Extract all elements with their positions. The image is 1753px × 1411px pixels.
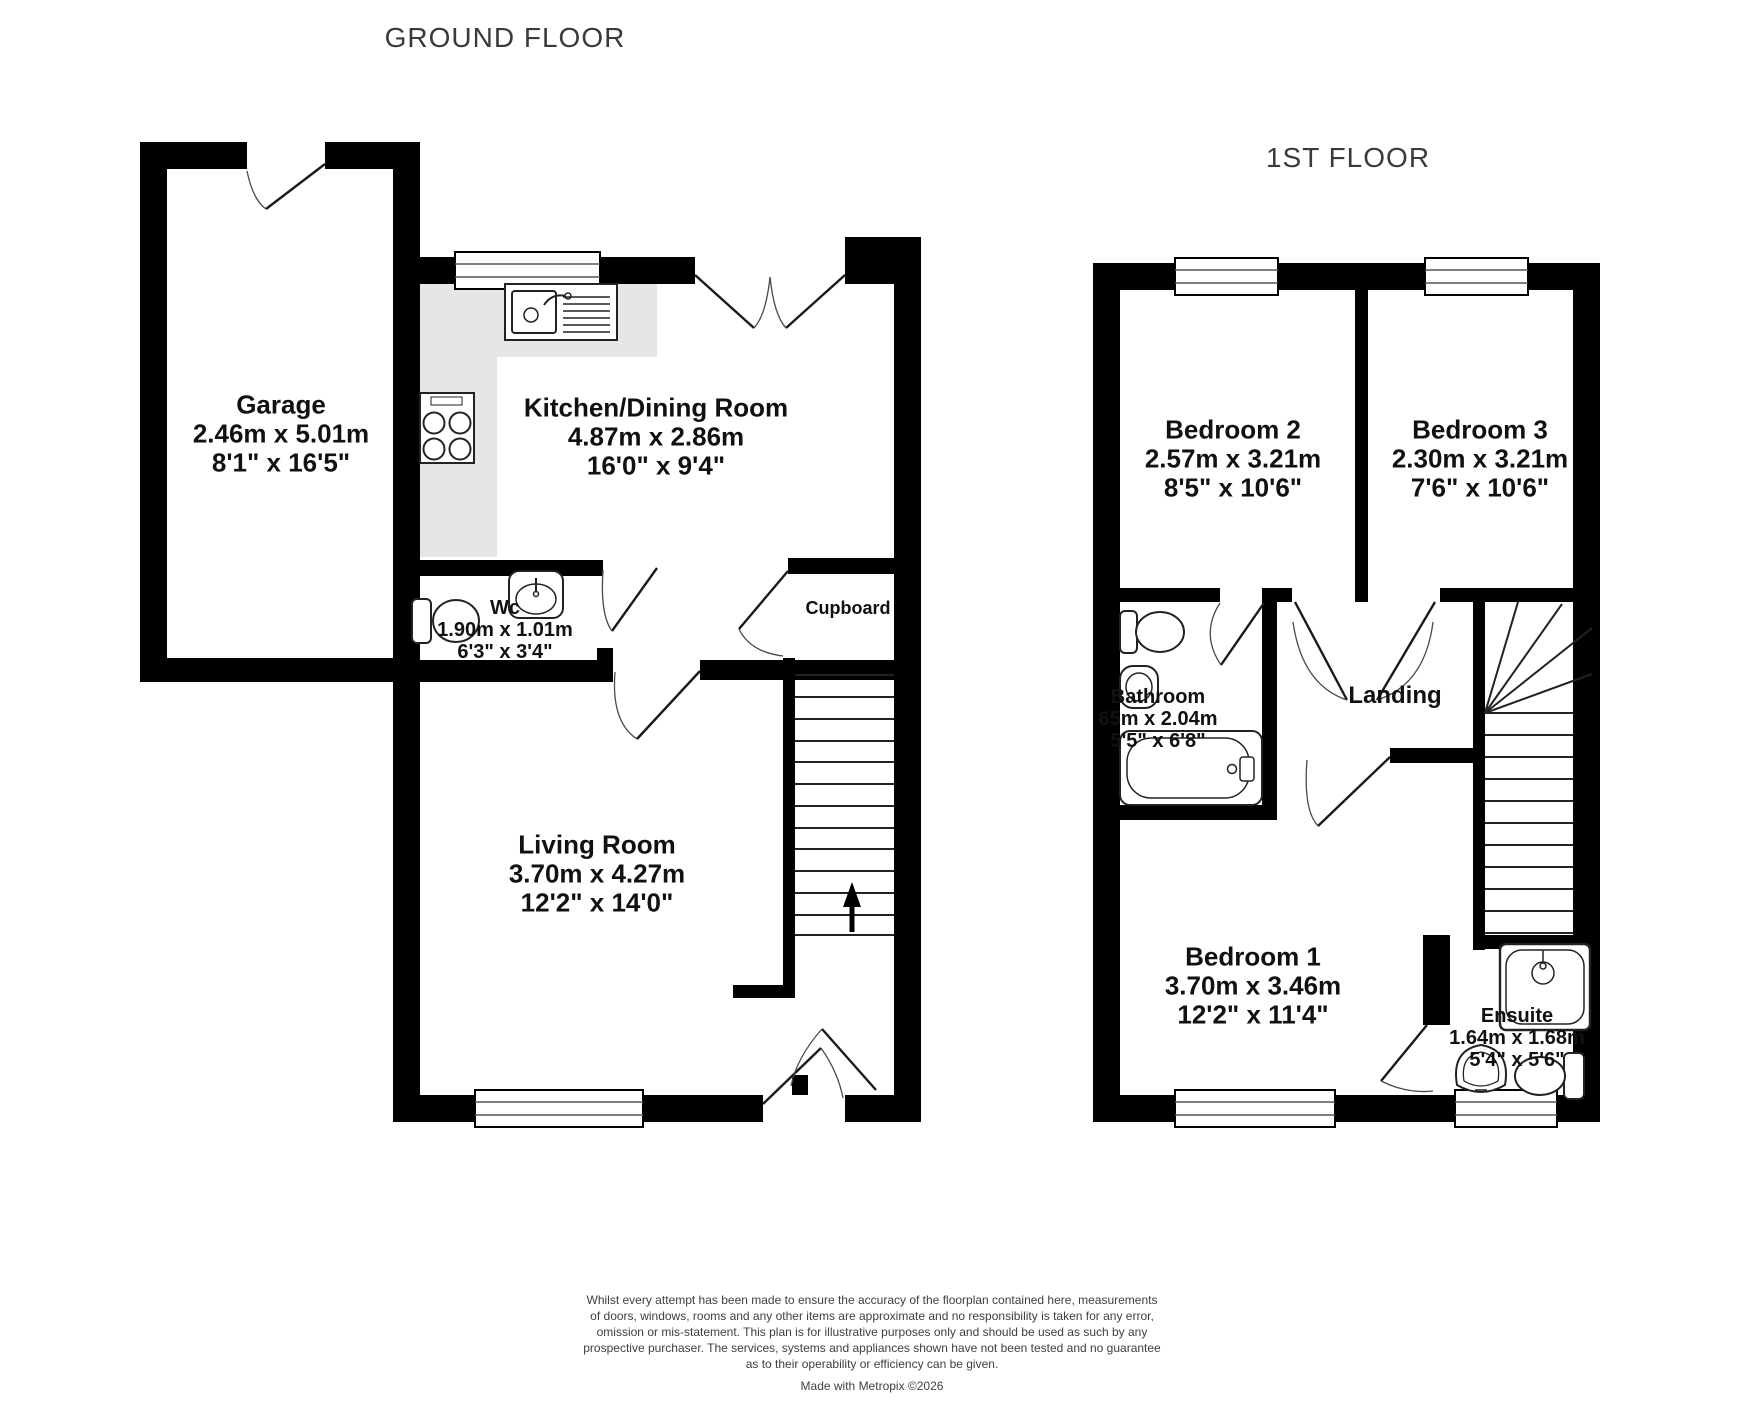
metropix-credit: Made with Metropix ©2026: [583, 1378, 1160, 1394]
ground-floor-staircase: [795, 675, 894, 935]
room-dim-imperial: 6'3" x 3'4": [437, 641, 573, 663]
room-dim-imperial: 5'4" x 5'6": [1449, 1049, 1585, 1071]
bedroom2-label: Bedroom 2 2.57m x 3.21m 8'5" x 10'6": [1145, 416, 1321, 503]
disclaimer-line: of doors, windows, rooms and any other i…: [583, 1308, 1160, 1324]
hob-icon: [420, 393, 474, 463]
room-name: Bedroom 2: [1145, 416, 1321, 445]
landing-label: Landing: [1348, 683, 1441, 709]
cupboard-door-swing: [739, 571, 788, 656]
room-name: Cupboard: [806, 598, 891, 618]
room-dim-metric: 4.87m x 2.86m: [524, 423, 788, 452]
living-room-door-swing: [614, 671, 700, 739]
room-dim-metric: 3.70m x 4.27m: [509, 860, 685, 889]
room-dim-imperial: 12'2" x 11'4": [1165, 1001, 1341, 1030]
disclaimer-line: as to their operability or efficiency ca…: [583, 1356, 1160, 1372]
garage-label: Garage 2.46m x 5.01m 8'1" x 16'5": [193, 391, 369, 478]
room-dim-metric: 3.70m x 3.46m: [1165, 972, 1341, 1001]
ensuite-door-swing: [1381, 1025, 1433, 1092]
room-dim-imperial: 8'1" x 16'5": [193, 449, 369, 478]
room-dim-metric: 2.30m x 3.21m: [1392, 445, 1568, 474]
stairs-up-arrow-icon: [843, 882, 861, 932]
room-dim-imperial: 5'5" x 6'8": [1099, 730, 1218, 752]
floorplan-canvas: [0, 0, 1753, 1411]
bedroom1-door-swing: [1306, 757, 1390, 826]
ground-floor-title: GROUND FLOOR: [385, 22, 626, 54]
disclaimer-line: omission or mis-statement. This plan is …: [583, 1324, 1160, 1340]
first-floor-title: 1ST FLOOR: [1266, 142, 1430, 174]
bedroom2-window: [1175, 258, 1278, 295]
room-name: Living Room: [509, 831, 685, 860]
room-dim-metric: 65m x 2.04m: [1099, 708, 1218, 730]
room-name: Bedroom 1: [1165, 943, 1341, 972]
living-room-window: [475, 1090, 643, 1127]
ensuite-label: Ensuite 1.64m x 1.68m 5'4" x 5'6": [1449, 1005, 1585, 1071]
bathroom-label: Bathroom 65m x 2.04m 5'5" x 6'8": [1099, 686, 1218, 752]
bathroom-door-swing: [1210, 603, 1264, 665]
cupboard-label: Cupboard: [806, 598, 891, 618]
wc-label: Wc 1.90m x 1.01m 6'3" x 3'4": [437, 597, 573, 663]
room-name: Bathroom: [1099, 686, 1218, 708]
disclaimer: Whilst every attempt has been made to en…: [583, 1292, 1160, 1394]
floorplan-page: GROUND FLOOR 1ST FLOOR Garage 2.46m x 5.…: [0, 0, 1753, 1411]
bathroom-toilet-icon: [1120, 611, 1184, 653]
wc-door-swing: [602, 568, 657, 631]
bedroom1-label: Bedroom 1 3.70m x 3.46m 12'2" x 11'4": [1165, 943, 1341, 1030]
kitchen-sink-icon: [505, 284, 617, 340]
bedroom3-label: Bedroom 3 2.30m x 3.21m 7'6" x 10'6": [1392, 416, 1568, 503]
bedroom3-window: [1425, 258, 1528, 295]
room-dim-metric: 2.57m x 3.21m: [1145, 445, 1321, 474]
room-name: Wc: [437, 597, 573, 619]
room-name: Garage: [193, 391, 369, 420]
room-dim-metric: 1.64m x 1.68m: [1449, 1027, 1585, 1049]
room-name: Ensuite: [1449, 1005, 1585, 1027]
kitchen-label: Kitchen/Dining Room 4.87m x 2.86m 16'0" …: [524, 394, 788, 481]
room-name: Landing: [1348, 683, 1441, 709]
garage-door-swing: [247, 164, 325, 209]
disclaimer-line: Whilst every attempt has been made to en…: [583, 1292, 1160, 1308]
bedroom2-door-swing: [1293, 602, 1347, 700]
disclaimer-line: prospective purchaser. The services, sys…: [583, 1340, 1160, 1356]
room-dim-metric: 1.90m x 1.01m: [437, 619, 573, 641]
living-room-label: Living Room 3.70m x 4.27m 12'2" x 14'0": [509, 831, 685, 918]
bedroom1-window: [1175, 1090, 1335, 1127]
room-dim-imperial: 16'0" x 9'4": [524, 452, 788, 481]
room-name: Bedroom 3: [1392, 416, 1568, 445]
room-dim-imperial: 12'2" x 14'0": [509, 889, 685, 918]
room-name: Kitchen/Dining Room: [524, 394, 788, 423]
kitchen-french-doors-swing: [695, 275, 845, 328]
room-dim-imperial: 8'5" x 10'6": [1145, 474, 1321, 503]
room-dim-imperial: 7'6" x 10'6": [1392, 474, 1568, 503]
room-dim-metric: 2.46m x 5.01m: [193, 420, 369, 449]
